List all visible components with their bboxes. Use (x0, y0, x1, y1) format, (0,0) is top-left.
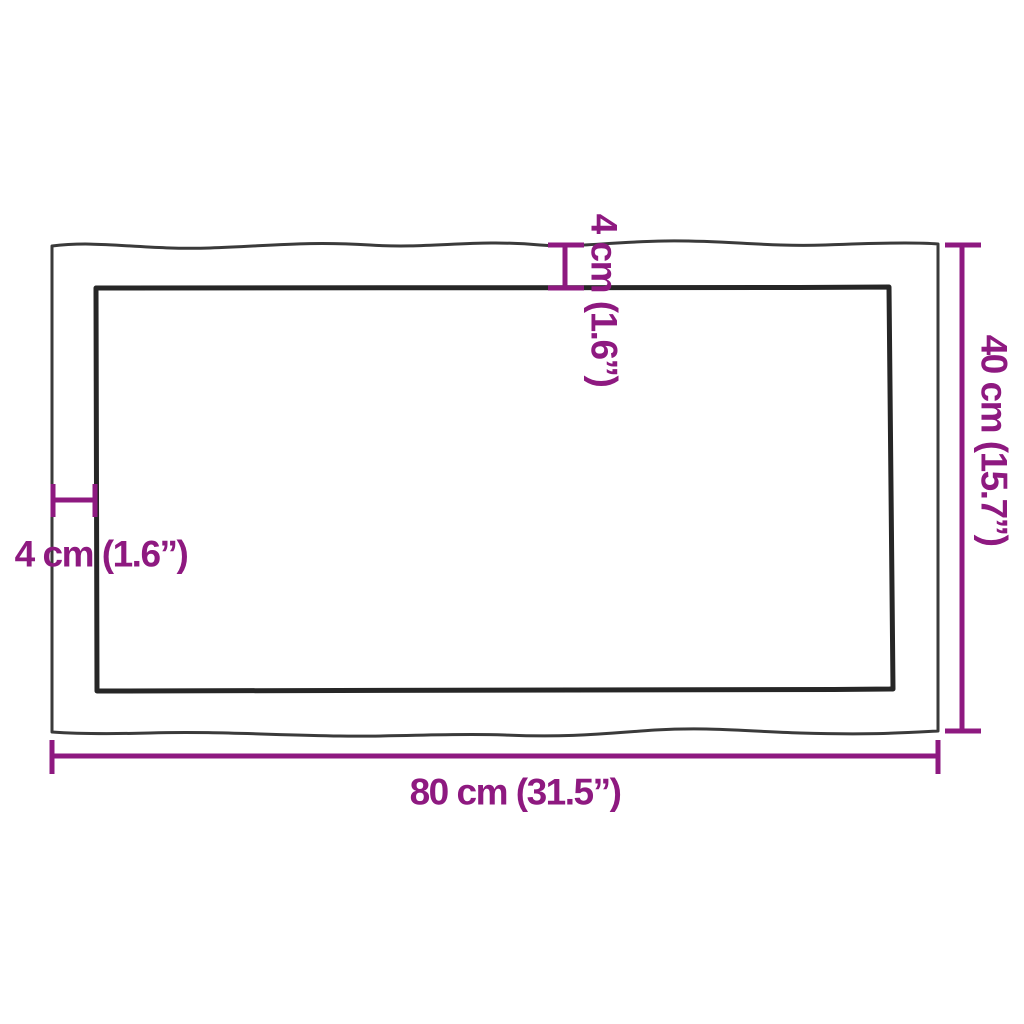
edge-thickness-left-label: 4 cm (1.6”) (15, 536, 188, 573)
edge-thickness-left-dimension-line (53, 484, 95, 517)
tabletop-inner-edge (96, 287, 893, 691)
diagram-line-art (0, 0, 1024, 1024)
dimension-diagram: 4 cm (1.6”) 4 cm (1.6”) 40 cm (15.7”) 80… (0, 0, 1024, 1024)
height-dimension-label: 40 cm (15.7”) (976, 335, 1013, 546)
tabletop-outer-edge (52, 241, 938, 736)
edge-thickness-top-label: 4 cm (1.6”) (586, 214, 623, 387)
width-dimension-line (52, 740, 938, 774)
dimension-lines (52, 245, 981, 774)
edge-thickness-top-dimension-line (548, 245, 584, 288)
width-dimension-label: 80 cm (31.5”) (410, 774, 621, 811)
